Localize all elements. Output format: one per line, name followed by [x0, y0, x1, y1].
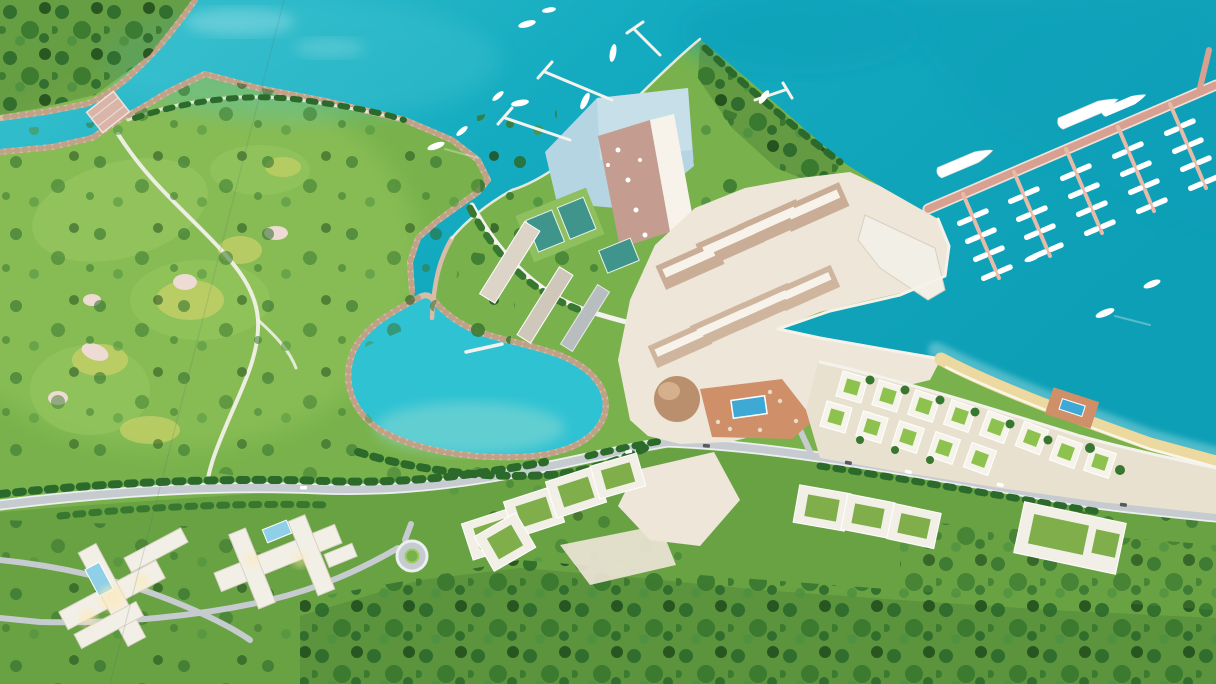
dome-highlight — [658, 382, 680, 400]
car — [300, 486, 307, 490]
resort-aerial-render: Aerial 3D master-plan rendering of a coa… — [0, 0, 1216, 684]
courtyard-glow — [292, 552, 308, 568]
courtyard-glow — [99, 585, 125, 611]
roundabout-island — [406, 550, 419, 563]
dome-pavilion — [654, 376, 700, 422]
deck-pool — [731, 396, 767, 419]
lagoon-shallow — [375, 402, 565, 454]
courtyard-glow — [244, 552, 260, 568]
courtyard-glow — [79, 609, 97, 627]
cloud-reflection — [295, 38, 365, 58]
car — [703, 444, 710, 448]
